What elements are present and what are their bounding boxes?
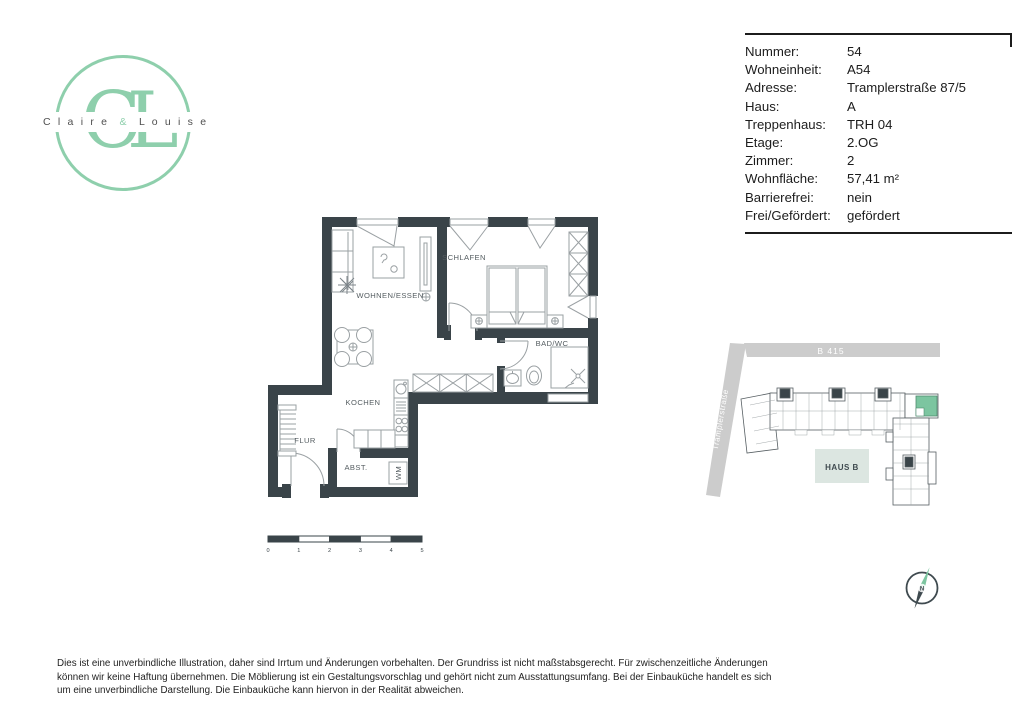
row-value: Tramplerstraße 87/5 [847, 79, 1012, 97]
walls [268, 217, 598, 498]
row-value: 2 [847, 152, 1012, 170]
scale-tick: 5 [420, 548, 423, 554]
kitchen-island-icon [354, 430, 395, 448]
table-row: Treppenhaus:TRH 04 [745, 116, 1012, 134]
scale-tick: 4 [390, 548, 393, 554]
row-value: TRH 04 [847, 116, 1012, 134]
logo-name: C l a i r e & L o u i s e [43, 116, 203, 128]
toilet-icon [527, 366, 542, 385]
disclaimer-text: Dies ist eine unverbindliche Illustratio… [57, 657, 786, 698]
table-top-rule [745, 33, 1012, 35]
scale-bar: 0 1 2 3 4 5 [266, 536, 423, 554]
dining-set-icon [335, 328, 374, 367]
row-value: 54 [847, 43, 1012, 61]
logo-name-right: L o u i s e [139, 116, 208, 128]
row-value: 57,41 m² [847, 170, 1012, 188]
kitchen-sink-icon [396, 384, 406, 394]
table-icon [373, 247, 404, 278]
room-label-schlafen: SCHLAFEN [442, 253, 486, 262]
room-label-flur: FLUR [294, 436, 316, 445]
haus-b-label: HAUS B [815, 449, 869, 483]
table-bottom-rule [745, 232, 1012, 234]
logo-name-left: C l a i r e [43, 116, 109, 128]
entry-door [291, 453, 324, 486]
site-plan: B 415 Tramplerstraße [695, 330, 1015, 620]
shower-icon [551, 347, 588, 388]
row-label: Wohnfläche: [745, 170, 847, 188]
room-label-kochen: KOCHEN [346, 398, 381, 407]
bath-door [500, 341, 528, 369]
hall-closet-icon [413, 374, 493, 392]
unit-info-table: Nummer:54 Wohneinheit:A54 Adresse:Trampl… [745, 33, 1012, 234]
room-label-abst: ABST. [344, 463, 367, 472]
scale-tick: 1 [297, 548, 300, 554]
wardrobe-icon [569, 232, 588, 296]
row-value: nein [847, 189, 1012, 207]
kitchen-counter-icon [394, 380, 408, 447]
row-value: gefördert [847, 207, 1012, 225]
nightstand-icon [471, 315, 487, 328]
double-bed-icon [487, 266, 547, 328]
table-row: Wohnfläche:57,41 m² [745, 170, 1012, 188]
apartment-floorplan: WOHNEN/ESSEN SCHLAFEN BAD/WC KOCHEN FLUR… [250, 200, 620, 560]
compass-north-label: N [920, 587, 924, 593]
row-label: Wohneinheit: [745, 61, 847, 79]
compass-icon: N [907, 566, 938, 609]
row-label: Zimmer: [745, 152, 847, 170]
plant-icon [338, 276, 356, 294]
building-footprint [741, 388, 938, 505]
room-label-bad: BAD/WC [536, 339, 569, 348]
logo-ampersand: & [119, 116, 128, 128]
row-label: Barrierefrei: [745, 189, 847, 207]
tv-board-icon [420, 237, 431, 291]
coat-rack-icon [278, 405, 296, 456]
row-label: Adresse: [745, 79, 847, 97]
scale-tick: 2 [328, 548, 331, 554]
row-value: 2.OG [847, 134, 1012, 152]
highlighted-unit [916, 396, 937, 416]
table-row: Nummer:54 [745, 43, 1012, 61]
svg-text:HAUS B: HAUS B [825, 463, 859, 472]
row-value: A [847, 98, 1012, 116]
floorplan-sheet: CL C l a i r e & L o u i s e Nummer:54 W… [0, 0, 1024, 724]
table-row: Etage:2.OG [745, 134, 1012, 152]
company-logo: CL C l a i r e & L o u i s e [55, 55, 193, 193]
scale-tick: 0 [266, 548, 269, 554]
table-row: Wohneinheit:A54 [745, 61, 1012, 79]
row-value: A54 [847, 61, 1012, 79]
row-label: Etage: [745, 134, 847, 152]
table-row: Adresse:Tramplerstraße 87/5 [745, 79, 1012, 97]
row-label: Treppenhaus: [745, 116, 847, 134]
table-row: Frei/Gefördert:gefördert [745, 207, 1012, 225]
room-label-wohnen: WOHNEN/ESSEN [356, 291, 423, 300]
room-label-wm: WM [394, 466, 403, 480]
nightstand-icon [547, 315, 563, 328]
row-label: Haus: [745, 98, 847, 116]
table-row: Haus:A [745, 98, 1012, 116]
scale-tick: 3 [359, 548, 362, 554]
road-label-b415: B 415 [817, 346, 844, 356]
sink-icon [504, 370, 521, 386]
table-row: Zimmer:2 [745, 152, 1012, 170]
row-label: Frei/Gefördert: [745, 207, 847, 225]
table-row: Barrierefrei:nein [745, 189, 1012, 207]
row-label: Nummer: [745, 43, 847, 61]
